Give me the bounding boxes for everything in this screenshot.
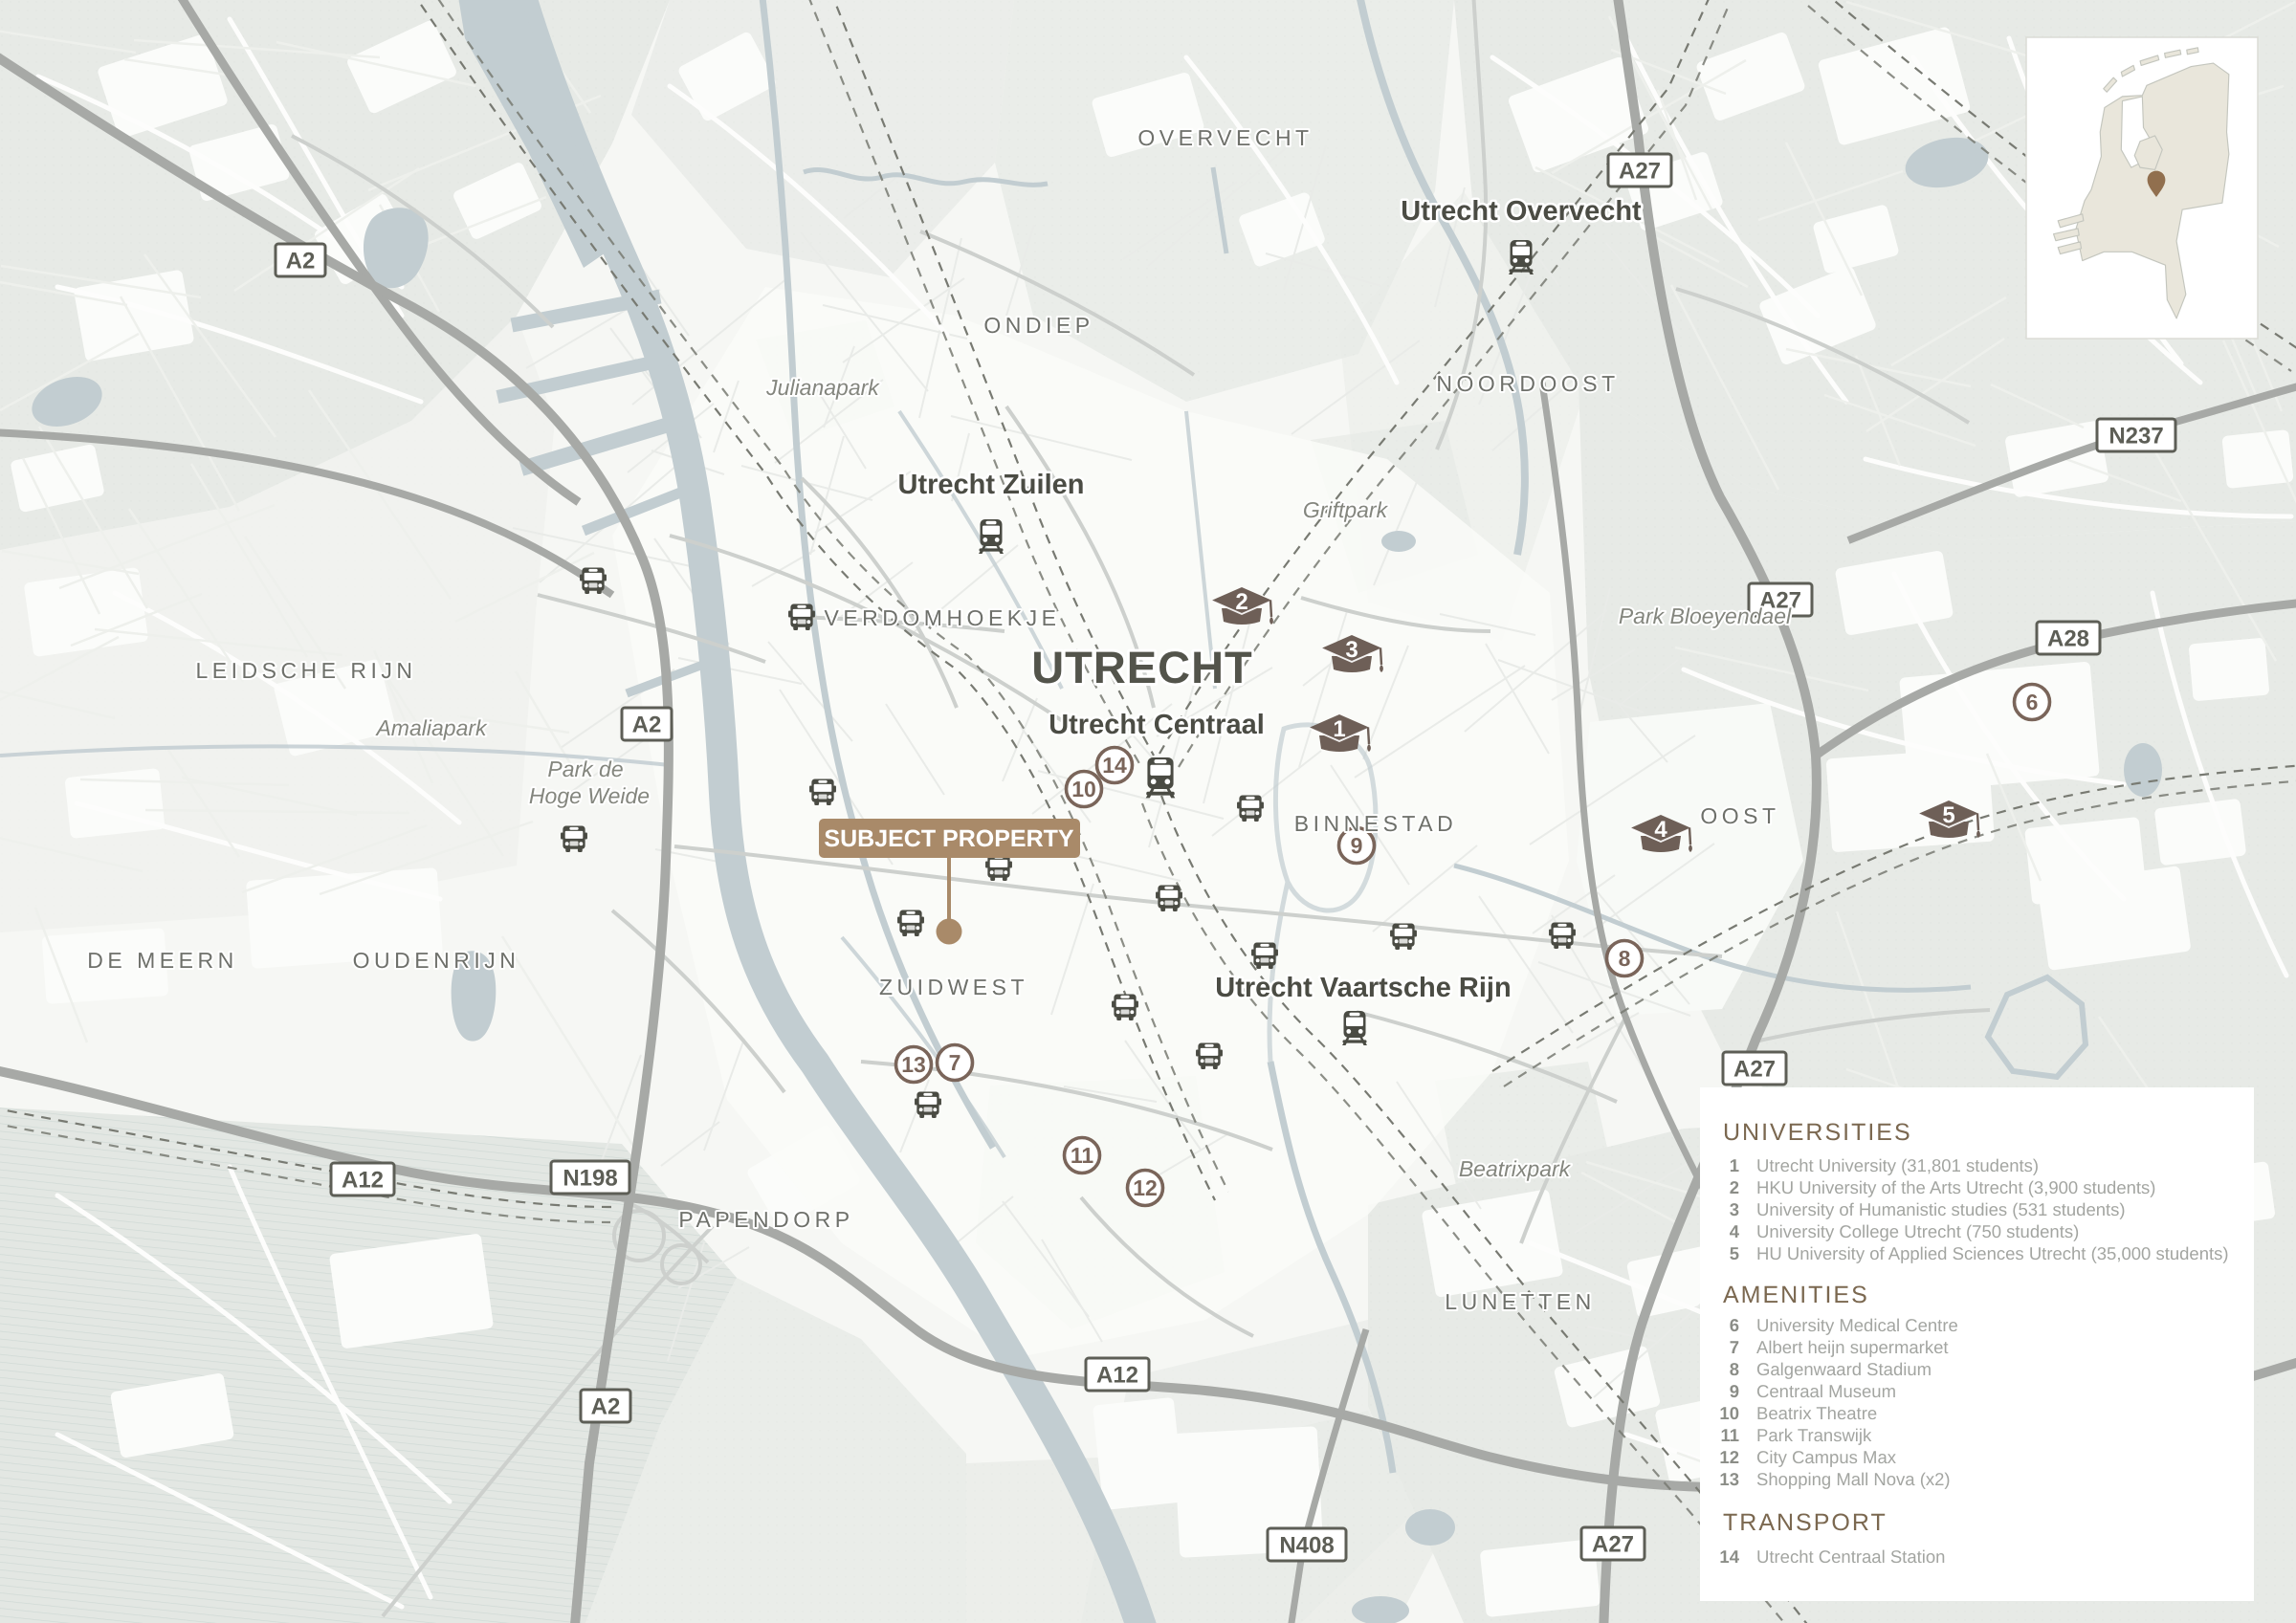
svg-text:HKU University of the Arts Utr: HKU University of the Arts Utrecht (3,90… [1756,1177,2155,1197]
svg-text:N198: N198 [563,1166,617,1192]
svg-text:9: 9 [1351,833,1363,858]
svg-text:A12: A12 [1096,1363,1138,1389]
svg-text:Shopping Mall Nova (x2): Shopping Mall Nova (x2) [1756,1469,1951,1489]
svg-text:Utrecht Centraal Station: Utrecht Centraal Station [1756,1546,1945,1567]
svg-text:Amaliapark: Amaliapark [374,715,488,740]
svg-text:A2: A2 [632,713,662,738]
svg-text:Park de: Park de [547,757,623,781]
svg-text:Utrecht Overvecht: Utrecht Overvecht [1401,196,1642,227]
svg-text:8: 8 [1619,946,1631,971]
svg-text:3: 3 [1730,1199,1739,1219]
svg-text:LUNETTEN: LUNETTEN [1445,1289,1595,1314]
svg-text:A27: A27 [1592,1532,1634,1558]
svg-text:5: 5 [1730,1243,1739,1263]
svg-text:Beatrixpark: Beatrixpark [1459,1156,1572,1181]
svg-text:HU University of Applied Scien: HU University of Applied Sciences Utrech… [1756,1243,2229,1263]
svg-text:PAPENDORP: PAPENDORP [678,1207,853,1232]
svg-text:Galgenwaard Stadium: Galgenwaard Stadium [1756,1359,1932,1379]
svg-text:1: 1 [1730,1155,1739,1175]
svg-text:Utrecht Centraal: Utrecht Centraal [1049,710,1265,740]
svg-text:Centraal Museum: Centraal Museum [1756,1381,1896,1401]
svg-text:LEIDSCHE RIJN: LEIDSCHE RIJN [195,658,416,683]
svg-text:Hoge Weide: Hoge Weide [529,783,650,808]
svg-text:OOST: OOST [1700,803,1779,828]
svg-text:14: 14 [1719,1546,1739,1567]
svg-text:Utrecht Zuilen: Utrecht Zuilen [898,470,1085,500]
svg-text:7: 7 [949,1050,961,1075]
svg-text:4: 4 [1730,1221,1740,1241]
svg-text:Albert heijn supermarket: Albert heijn supermarket [1756,1337,1949,1357]
svg-text:Griftpark: Griftpark [1303,497,1389,522]
svg-text:A2: A2 [591,1394,621,1420]
svg-text:10: 10 [1719,1403,1739,1423]
svg-text:13: 13 [1719,1469,1739,1489]
svg-text:8: 8 [1730,1359,1739,1379]
svg-text:6: 6 [2026,690,2039,714]
svg-text:TRANSPORT: TRANSPORT [1723,1509,1888,1536]
svg-text:N237: N237 [2108,424,2163,450]
svg-text:University Medical Centre: University Medical Centre [1756,1315,1958,1335]
svg-text:A27: A27 [1619,159,1661,185]
svg-text:Park Transwijk: Park Transwijk [1756,1425,1872,1445]
svg-text:12: 12 [1719,1447,1739,1467]
svg-text:A27: A27 [1733,1057,1776,1083]
svg-text:10: 10 [1071,777,1096,801]
svg-text:11: 11 [1720,1425,1739,1445]
svg-text:UNIVERSITIES: UNIVERSITIES [1723,1119,1912,1146]
svg-text:A2: A2 [286,249,316,274]
svg-text:12: 12 [1133,1175,1158,1200]
svg-text:OVERVECHT: OVERVECHT [1137,125,1313,150]
svg-text:City Campus Max: City Campus Max [1756,1447,1897,1467]
svg-text:A28: A28 [2047,626,2089,652]
svg-text:OUDENRIJN: OUDENRIJN [353,948,520,973]
svg-text:13: 13 [901,1052,926,1077]
svg-text:2: 2 [1235,589,1247,615]
svg-text:5: 5 [1942,802,1954,828]
svg-text:BINNESTAD: BINNESTAD [1294,811,1457,836]
svg-text:University of Humanistic studi: University of Humanistic studies (531 st… [1756,1199,2126,1219]
svg-text:Utrecht Vaartsche Rijn: Utrecht Vaartsche Rijn [1215,973,1511,1003]
svg-text:UTRECHT: UTRECHT [1031,642,1253,692]
svg-text:7: 7 [1730,1337,1739,1357]
svg-text:NOORDOOST: NOORDOOST [1436,371,1619,396]
svg-text:3: 3 [1345,637,1358,663]
svg-text:SUBJECT PROPERTY: SUBJECT PROPERTY [824,825,1073,852]
svg-text:Beatrix Theatre: Beatrix Theatre [1756,1403,1877,1423]
svg-text:9: 9 [1730,1381,1739,1401]
svg-text:2: 2 [1730,1177,1739,1197]
svg-text:N408: N408 [1279,1533,1334,1559]
svg-text:Utrecht University (31,801 stu: Utrecht University (31,801 students) [1756,1155,2039,1175]
svg-text:Park Bloeyendael: Park Bloeyendael [1619,603,1792,628]
svg-text:6: 6 [1730,1315,1739,1335]
svg-text:ZUIDWEST: ZUIDWEST [879,975,1028,999]
svg-text:14: 14 [1102,753,1127,778]
svg-text:11: 11 [1071,1143,1094,1168]
svg-text:University College Utrecht (75: University College Utrecht (750 students… [1756,1221,2079,1241]
svg-text:VERDOMHOEKJE: VERDOMHOEKJE [825,605,1061,630]
svg-text:AMENITIES: AMENITIES [1723,1282,1869,1308]
svg-text:1: 1 [1333,716,1345,742]
svg-text:4: 4 [1654,817,1667,843]
svg-text:DE MEERN: DE MEERN [87,948,237,973]
svg-text:A12: A12 [342,1168,384,1194]
svg-text:ONDIEP: ONDIEP [983,313,1093,338]
svg-text:Julianapark: Julianapark [765,375,880,400]
